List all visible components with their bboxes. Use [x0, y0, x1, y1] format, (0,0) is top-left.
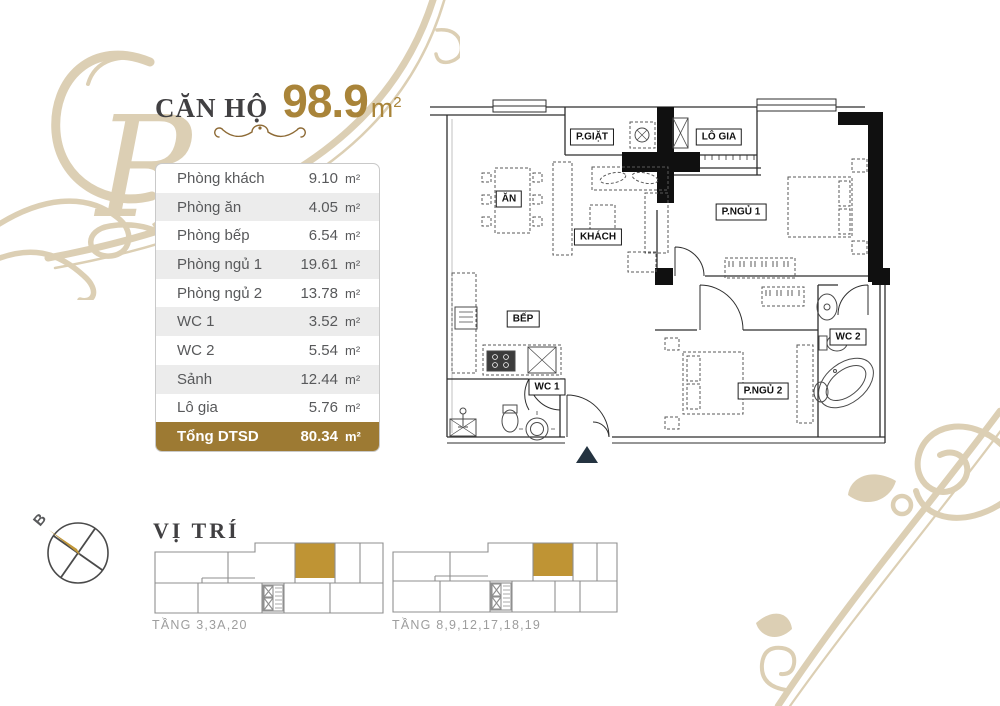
room-label-wc2: WC 2	[830, 329, 867, 346]
room-label-bedroom2: P.NGỦ 2	[738, 383, 789, 400]
table-row: Phòng bếp 6.54 m²	[156, 221, 379, 250]
table-row: Phòng ngủ 2 13.78 m²	[156, 279, 379, 308]
brochure-page: R CĂN HỘ 98.9 m2 Phòng khách 9.10 m²	[0, 0, 1000, 706]
apartment-type-label: CĂN HỘ	[155, 93, 268, 124]
room-label-kitchen: BẾP	[507, 311, 540, 328]
table-row: Phòng ngủ 1 19.61 m²	[156, 250, 379, 279]
table-row: Phòng ăn 4.05 m²	[156, 193, 379, 222]
room-label-living: KHÁCH	[574, 229, 622, 246]
entrance-marker-icon	[576, 446, 598, 463]
highlighted-unit	[295, 543, 335, 578]
floor-location-diagram-1	[150, 538, 390, 620]
compass-north-label: B	[30, 510, 50, 529]
title-flourish-ornament	[211, 121, 309, 145]
table-row: Lô gia 5.76 m²	[156, 394, 379, 423]
floor-plan: P.GIẶT LÔ GIA ĂN KHÁCH P.NGỦ 1 BẾP WC 1 …	[425, 93, 900, 488]
table-row: WC 1 3.52 m²	[156, 307, 379, 336]
floor-location-diagram-2	[390, 538, 620, 620]
floor-plan-drawing	[425, 93, 900, 488]
room-label-laundry: P.GIẶT	[570, 129, 614, 146]
room-label-wc1: WC 1	[529, 379, 566, 396]
room-label-bedroom1: P.NGỦ 1	[716, 204, 767, 221]
floor-group-label-1: TẦNG 3,3A,20	[152, 618, 248, 632]
room-label-loggia: LÔ GIA	[696, 129, 742, 146]
compass: B	[28, 505, 138, 615]
table-row: Phòng khách 9.10 m²	[156, 164, 379, 193]
floor-group-label-2: TẦNG 8,9,12,17,18,19	[392, 618, 541, 632]
highlighted-unit	[533, 543, 573, 576]
apartment-area-value: 98.9	[282, 74, 368, 128]
table-row: WC 2 5.54 m²	[156, 336, 379, 365]
apartment-header: CĂN HỘ 98.9 m2	[155, 74, 402, 128]
apartment-area-unit: m2	[371, 93, 402, 124]
room-area-table: Phòng khách 9.10 m² Phòng ăn 4.05 m² Phò…	[155, 163, 380, 452]
room-label-dining: ĂN	[496, 191, 522, 208]
table-total-row: Tổng DTSD 80.34 m²	[156, 422, 379, 451]
table-row: Sảnh 12.44 m²	[156, 365, 379, 394]
